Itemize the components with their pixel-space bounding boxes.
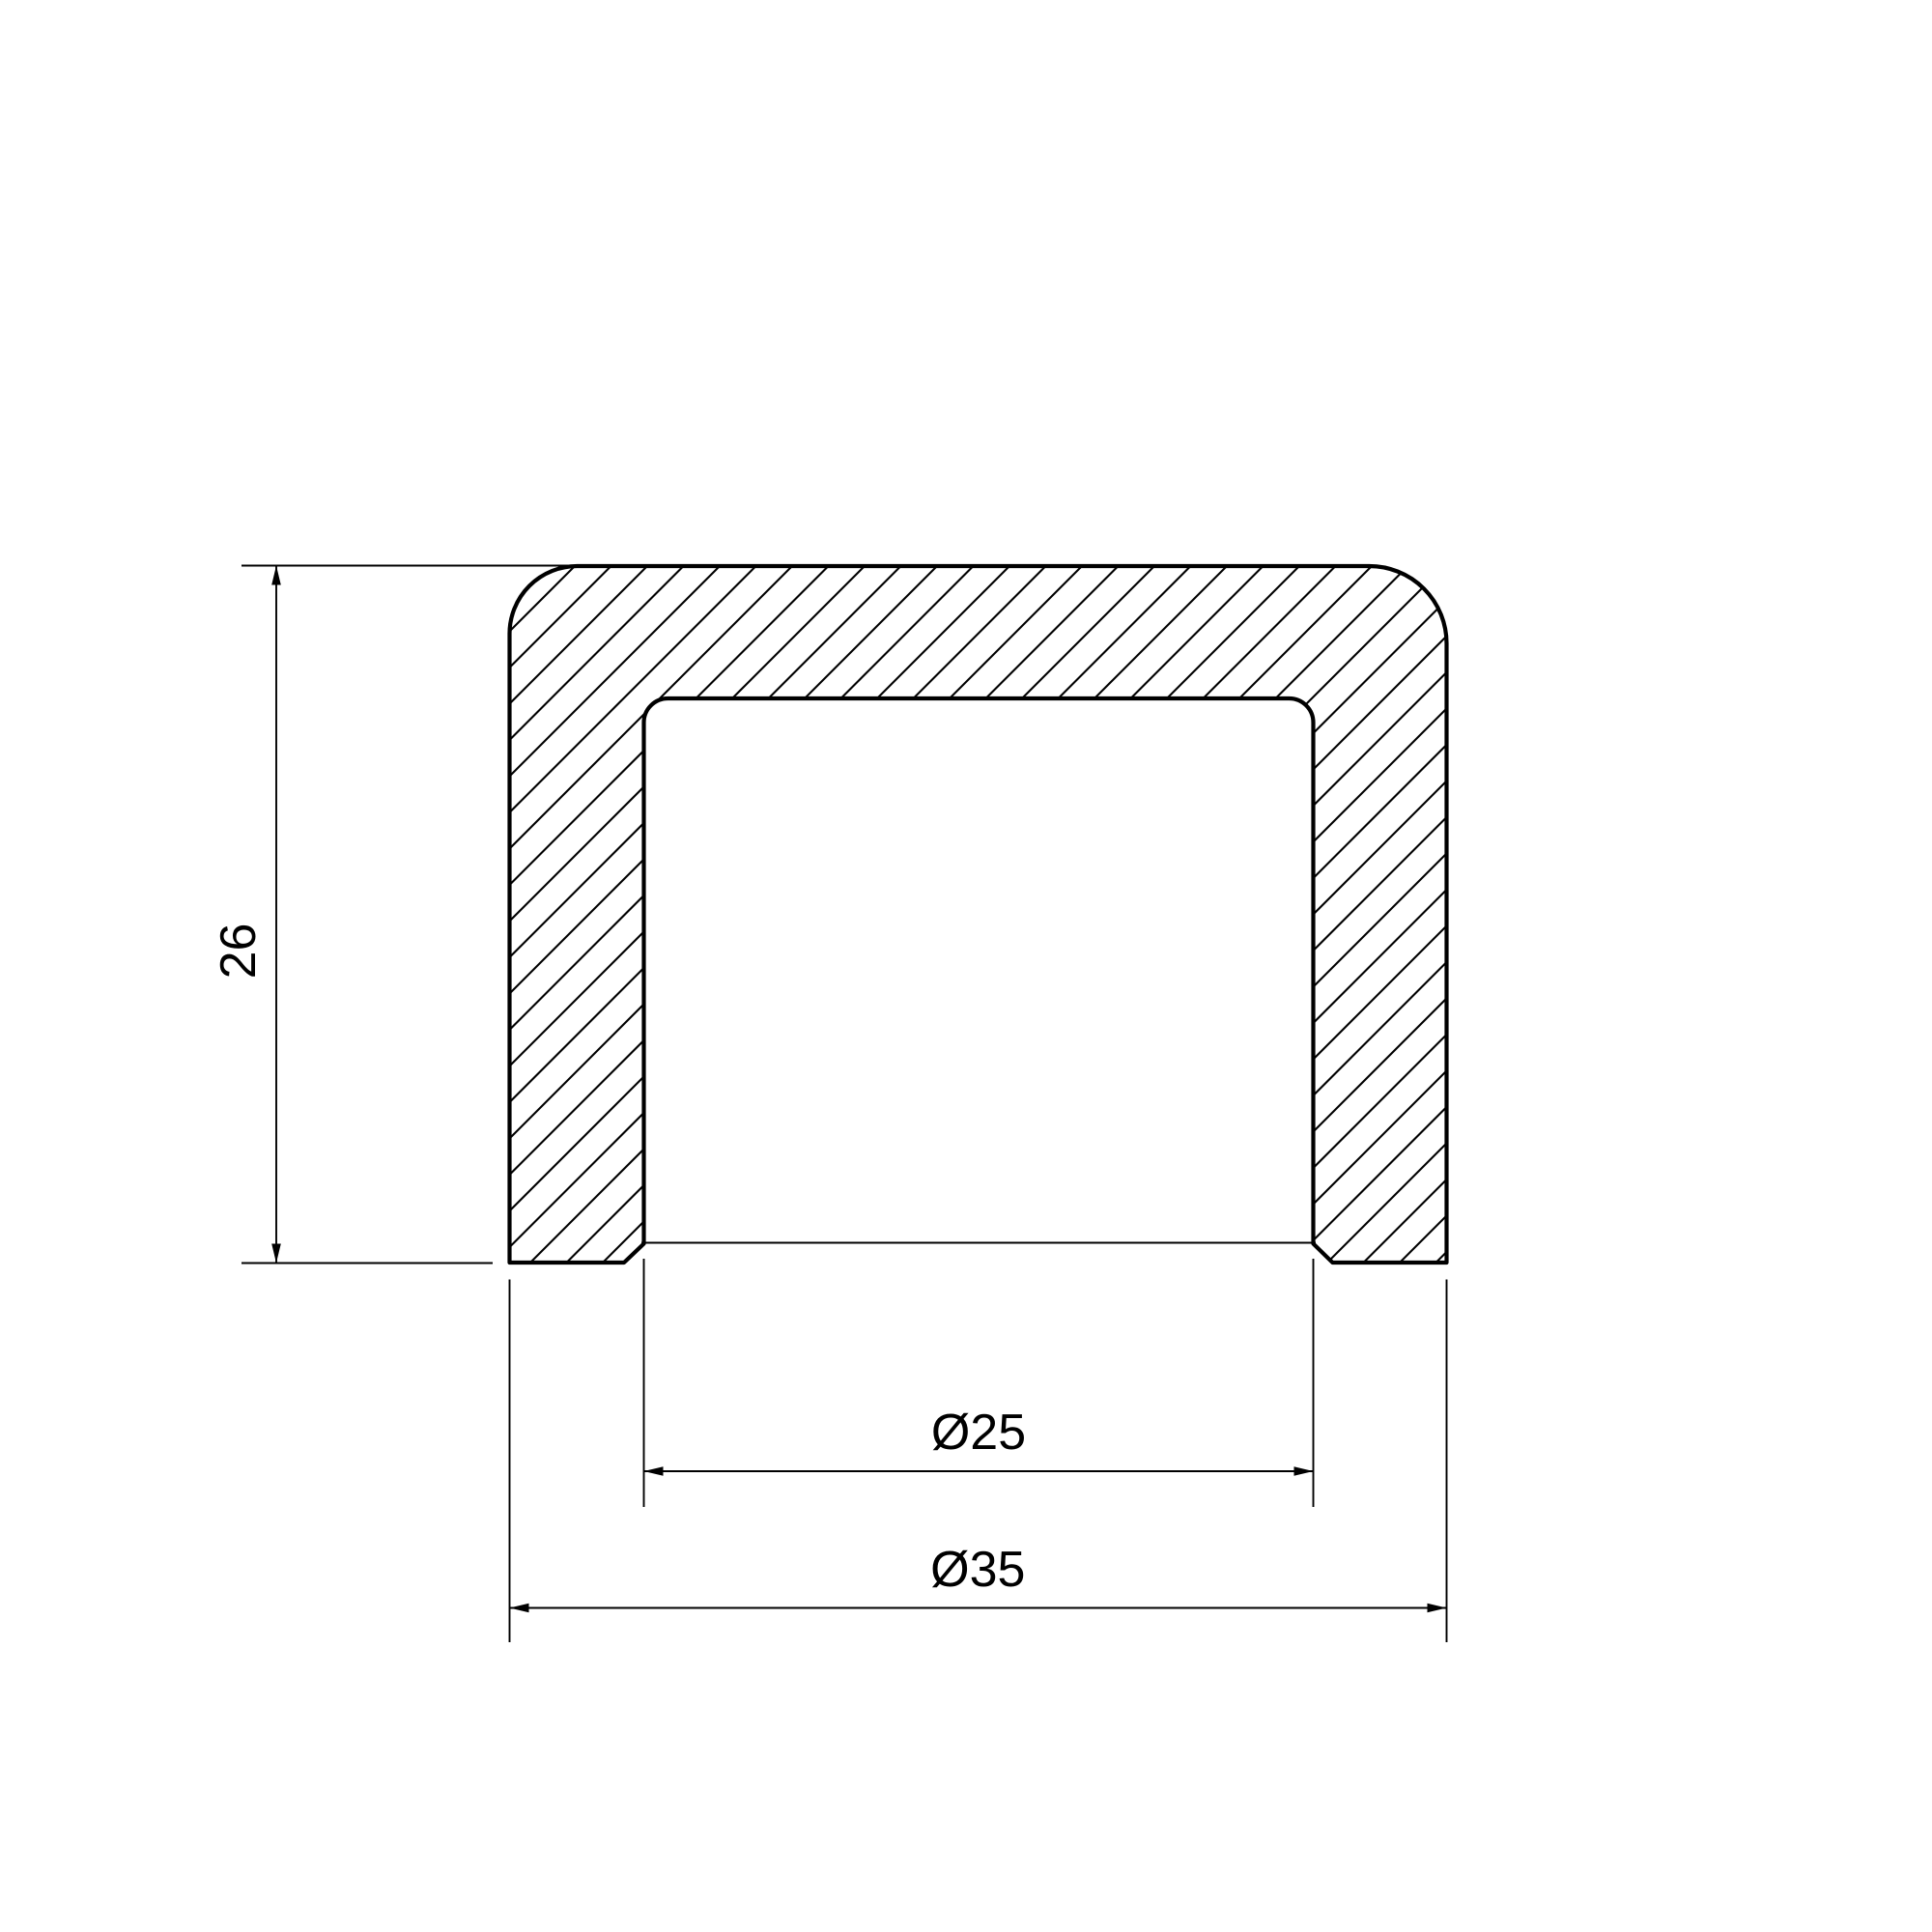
- svg-text:Ø35: Ø35: [930, 1542, 1025, 1598]
- svg-text:26: 26: [211, 923, 267, 980]
- svg-text:Ø25: Ø25: [931, 1405, 1026, 1461]
